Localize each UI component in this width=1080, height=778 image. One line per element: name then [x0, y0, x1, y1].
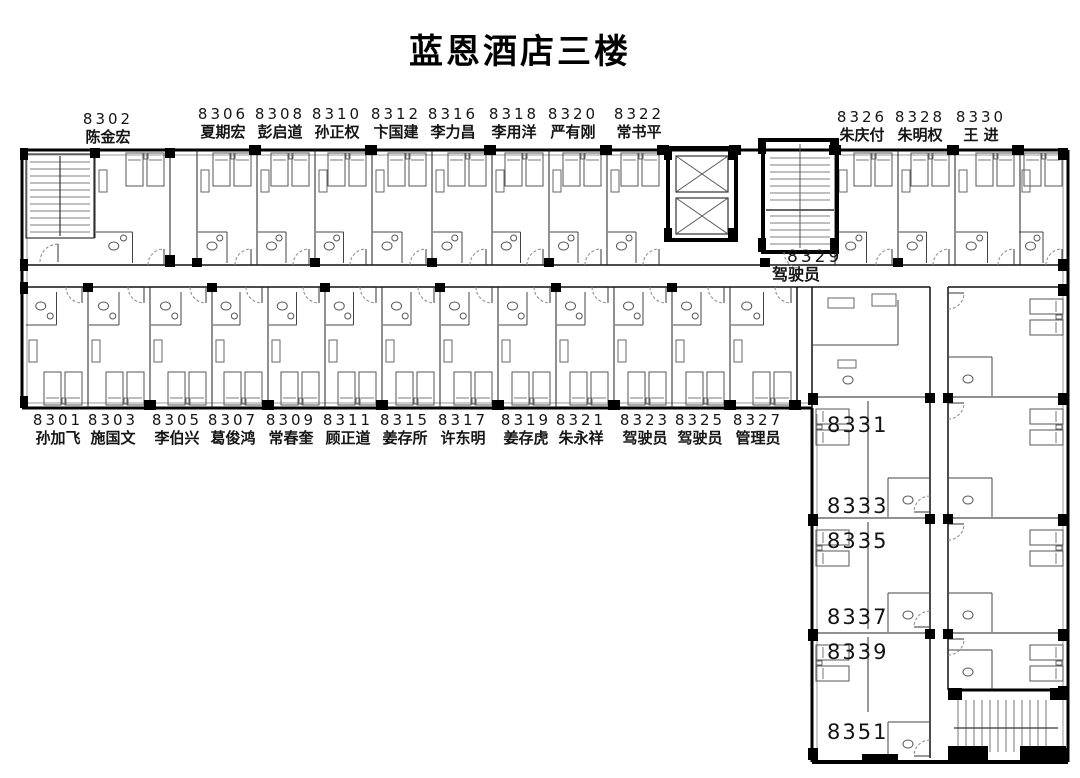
room-label-8321: 8321 朱永祥 [551, 412, 611, 447]
room-label-8311: 8311 顾正道 [318, 412, 378, 447]
room-label-8315: 8315 姜存所 [375, 412, 435, 447]
room-label-8312: 8312 卞国建 [366, 106, 426, 141]
room-label-8327: 8327 管理员 [728, 412, 788, 447]
room-label-8319: 8319 姜存虎 [496, 412, 556, 447]
room-label-8330: 8330 王 进 [951, 109, 1011, 144]
page-title: 蓝恩酒店三楼 [0, 24, 1040, 73]
room-label-8335: 8335 [827, 529, 888, 553]
room-label-8310: 8310 孙正权 [307, 106, 367, 141]
room-label-8317: 8317 许东明 [433, 412, 493, 447]
room-label-8308: 8308 彭启道 [250, 106, 310, 141]
room-label-8337: 8337 [827, 605, 888, 629]
room-label-8320: 8320 严有刚 [543, 106, 603, 141]
room-label-8316: 8316 李力昌 [423, 106, 483, 141]
room-label-8302: 8302 陈金宏 [78, 111, 138, 146]
room-label-8326: 8326 朱庆付 [832, 109, 892, 144]
room-label-8306: 8306 夏期宏 [193, 106, 253, 141]
room-label-8351: 8351 [827, 720, 888, 744]
room-label-8323: 8323 驾驶员 [615, 412, 675, 447]
room-label-8305: 8305 李伯兴 [147, 412, 207, 447]
room-label-8309: 8309 常春奎 [261, 412, 321, 447]
room-label-8328: 8328 朱明权 [890, 109, 950, 144]
room-label-8339: 8339 [827, 640, 888, 664]
room-label-8318: 8318 李用洋 [484, 106, 544, 141]
room-label-8307: 8307 葛俊鸿 [203, 412, 263, 447]
room-label-8329: 8329 驾驶员 [772, 248, 842, 284]
floor-plan-page: 蓝恩酒店三楼 8302 陈金宏 8306 夏期宏 8308 彭启道 8310 孙… [0, 0, 1080, 778]
room-label-8303: 8303 施国文 [83, 412, 143, 447]
room-label-8322: 8322 常书平 [609, 106, 669, 141]
room-label-8333: 8333 [827, 494, 888, 518]
room-label-8325: 8325 驾驶员 [670, 412, 730, 447]
room-label-8301: 8301 孙加飞 [28, 412, 88, 447]
room-label-8331: 8331 [827, 413, 888, 437]
